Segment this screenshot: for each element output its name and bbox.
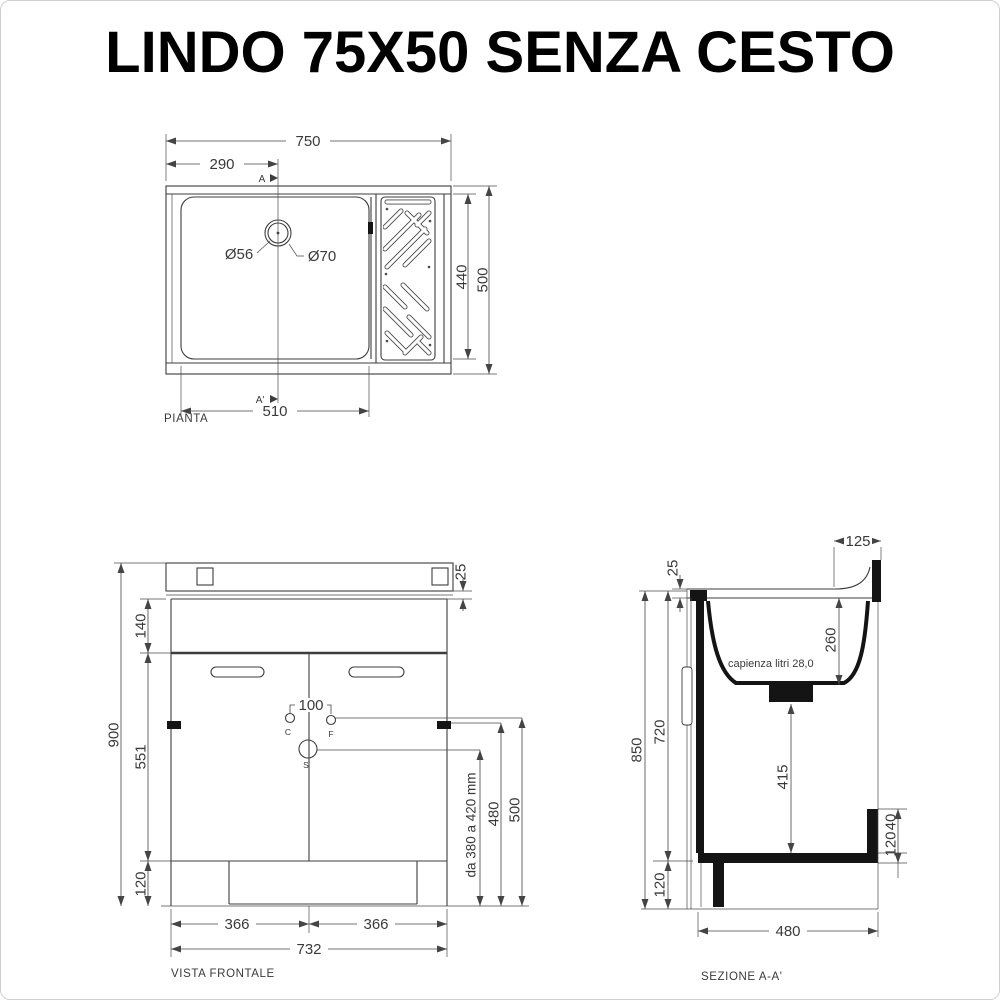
section-mark-bottom: A' xyxy=(256,395,265,406)
hot-water-mark: C xyxy=(285,727,291,737)
drain-mark: S xyxy=(303,760,309,770)
back-step-cut xyxy=(867,809,878,853)
section-dim-step-height: 120 xyxy=(882,831,899,856)
plan-dim-basin-width: 510 xyxy=(262,403,287,420)
plan-view-label: PIANTA xyxy=(164,413,208,425)
section-mark-top: A xyxy=(259,174,266,185)
section-dim-total-height: 850 xyxy=(628,737,645,762)
leader-drain-inner xyxy=(257,241,270,253)
plan-dim-lines xyxy=(166,141,489,411)
front-dim-tap-spacing: 100 xyxy=(298,697,323,714)
drain-point xyxy=(299,740,317,758)
section-arrow-bottom-icon xyxy=(270,395,278,403)
front-dim-lines xyxy=(121,563,522,949)
technical-drawing-sheet: LINDO 75X50 SENZA CESTO xyxy=(0,0,1000,1000)
section-dim-labels: 25 125 260 capienza litri 28,0 850 720 1… xyxy=(628,533,899,983)
plan-dim-total-depth: 500 xyxy=(474,267,491,292)
front-corner-post-right xyxy=(432,568,448,585)
drain-fitting xyxy=(769,685,813,702)
front-extension-lines xyxy=(114,563,522,957)
section-dim-plinth-height: 120 xyxy=(651,872,668,897)
plinth-cut xyxy=(713,863,724,907)
section-view-label: SEZIONE A-A' xyxy=(701,971,783,983)
door-handle-right xyxy=(349,667,404,677)
leader-drain-outer xyxy=(289,244,304,256)
capacity-note: capienza litri 28,0 xyxy=(728,658,814,670)
plan-dim-total-width: 750 xyxy=(295,133,320,150)
door-handle-left xyxy=(211,667,264,677)
front-dim-door-width-left: 366 xyxy=(224,916,249,933)
plan-dim-drain-offset: 290 xyxy=(209,156,234,173)
front-dim-side-fix-height: 480 xyxy=(485,801,502,826)
front-corner-post-left xyxy=(197,568,213,585)
plan-dim-drain-inner: Ø56 xyxy=(225,246,253,263)
splash-curve xyxy=(835,567,870,589)
front-dim-drain-range: da 380 a 420 mm xyxy=(464,772,479,877)
overflow-mark xyxy=(368,222,373,234)
section-geometry xyxy=(641,560,881,909)
front-dim-top-band: 140 xyxy=(132,613,149,638)
drawing-svg: 750 290 510 440 500 Ø56 Ø70 A A' PIANTA xyxy=(1,1,999,999)
section-dim-inner-height: 720 xyxy=(651,719,668,744)
hot-water-point xyxy=(286,714,295,723)
section-dim-basin-depth: 260 xyxy=(822,627,839,652)
side-handle-profile xyxy=(682,667,692,725)
side-bracket-right xyxy=(437,721,451,729)
front-dim-top-edge: 25 xyxy=(452,564,469,581)
plan-geometry xyxy=(166,159,451,407)
front-dim-labels: 900 140 551 120 25 100 C F S da 380 a 42… xyxy=(105,564,523,980)
front-dim-total-height: 900 xyxy=(105,722,122,747)
section-view: 25 125 260 capienza litri 28,0 850 720 1… xyxy=(628,533,907,983)
plan-dim-labels: 750 290 510 440 500 Ø56 Ø70 A A' PIANTA xyxy=(164,133,491,425)
splashback-cut xyxy=(872,560,881,602)
section-dim-splash-overhang: 125 xyxy=(845,533,870,550)
cold-water-point xyxy=(327,716,336,725)
front-dim-tap-height: 500 xyxy=(506,797,523,822)
front-dim-plinth-height: 120 xyxy=(132,871,149,896)
section-arrow-top-icon xyxy=(270,174,278,182)
plan-dim-inner-depth: 440 xyxy=(453,264,470,289)
plan-basin xyxy=(181,197,369,359)
front-view-label: VISTA FRONTALE xyxy=(171,968,275,980)
side-bracket-left xyxy=(167,721,181,729)
section-dim-total-depth: 480 xyxy=(775,923,800,940)
basin-profile xyxy=(708,601,868,683)
front-dim-door-height: 551 xyxy=(132,744,149,769)
bottom-panel-cut xyxy=(698,853,878,863)
front-view: 900 140 551 120 25 100 C F S da 380 a 42… xyxy=(105,563,529,980)
cold-water-mark: F xyxy=(328,729,333,739)
drainboard-ribs xyxy=(385,202,429,353)
section-dim-step-thickness: 40 xyxy=(882,814,899,831)
plan-view: 750 290 510 440 500 Ø56 Ø70 A A' PIANTA xyxy=(164,133,497,425)
front-dim-door-width-right: 366 xyxy=(363,916,388,933)
section-dim-drain-clearance: 415 xyxy=(774,764,791,789)
front-top-slab xyxy=(166,563,453,591)
section-dim-lines xyxy=(645,541,898,931)
front-dim-total-width: 732 xyxy=(296,941,321,958)
front-panel-cut xyxy=(696,601,704,853)
section-dim-top-edge: 25 xyxy=(664,560,681,577)
rim-cut xyxy=(690,590,707,601)
plan-dim-drain-outer: Ø70 xyxy=(308,248,336,265)
